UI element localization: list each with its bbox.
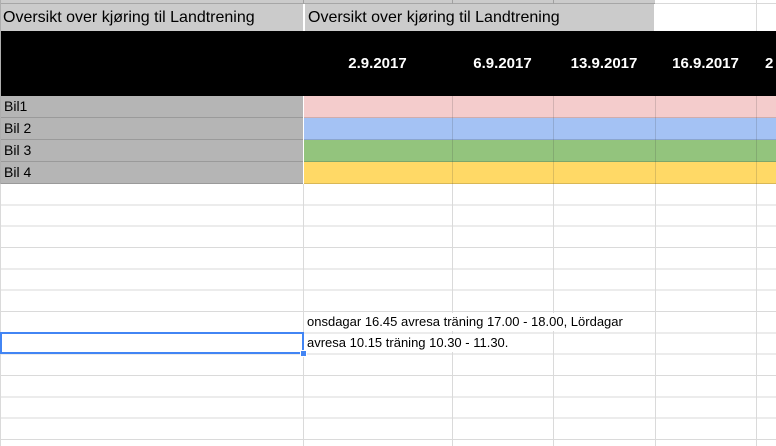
- gridline: [0, 0, 1, 184]
- title-cell-b[interactable]: Oversikt over kjøring til Landtrening: [305, 4, 654, 31]
- gridline: [0, 184, 1, 446]
- row-label-bil2[interactable]: Bil 2: [0, 118, 303, 140]
- row-label-bil3[interactable]: Bil 3: [0, 140, 303, 162]
- top-row-sliver-white: [655, 0, 776, 4]
- title-cell-a[interactable]: Oversikt over kjøring til Landtrening: [0, 4, 303, 31]
- row-label-bil4[interactable]: Bil 4: [0, 162, 303, 184]
- gridline: [553, 96, 554, 184]
- date-header-band: 2.9.2017 6.9.2017 13.9.2017 16.9.2017 2: [0, 31, 776, 96]
- gridline: [303, 0, 304, 4]
- gridline: [303, 184, 304, 446]
- gridline: [756, 0, 757, 31]
- gridline: [655, 96, 656, 184]
- gridline: [756, 96, 757, 184]
- row-label-bil1[interactable]: Bil1: [0, 96, 303, 118]
- row-band-bil4[interactable]: [304, 162, 776, 184]
- date-cell-1[interactable]: 2.9.2017: [303, 31, 452, 96]
- date-cell-3[interactable]: 13.9.2017: [553, 31, 655, 96]
- spreadsheet: Oversikt over kjøring til Landtrening Ov…: [0, 0, 776, 446]
- row-band-bil3[interactable]: [304, 140, 776, 162]
- note-line-1[interactable]: onsdagar 16.45 avresa träning 17.00 - 18…: [307, 312, 772, 332]
- note-line-2[interactable]: avresa 10.15 träning 10.30 - 11.30.: [307, 333, 772, 353]
- fill-handle[interactable]: [300, 350, 307, 357]
- row-band-bil1[interactable]: [304, 96, 776, 118]
- date-cell-4[interactable]: 16.9.2017: [655, 31, 756, 96]
- date-cell-5-clipped[interactable]: 2: [757, 31, 776, 96]
- selected-cell[interactable]: [0, 332, 304, 354]
- date-cell-2[interactable]: 6.9.2017: [452, 31, 553, 96]
- gridline: [452, 96, 453, 184]
- row-band-bil2[interactable]: [304, 118, 776, 140]
